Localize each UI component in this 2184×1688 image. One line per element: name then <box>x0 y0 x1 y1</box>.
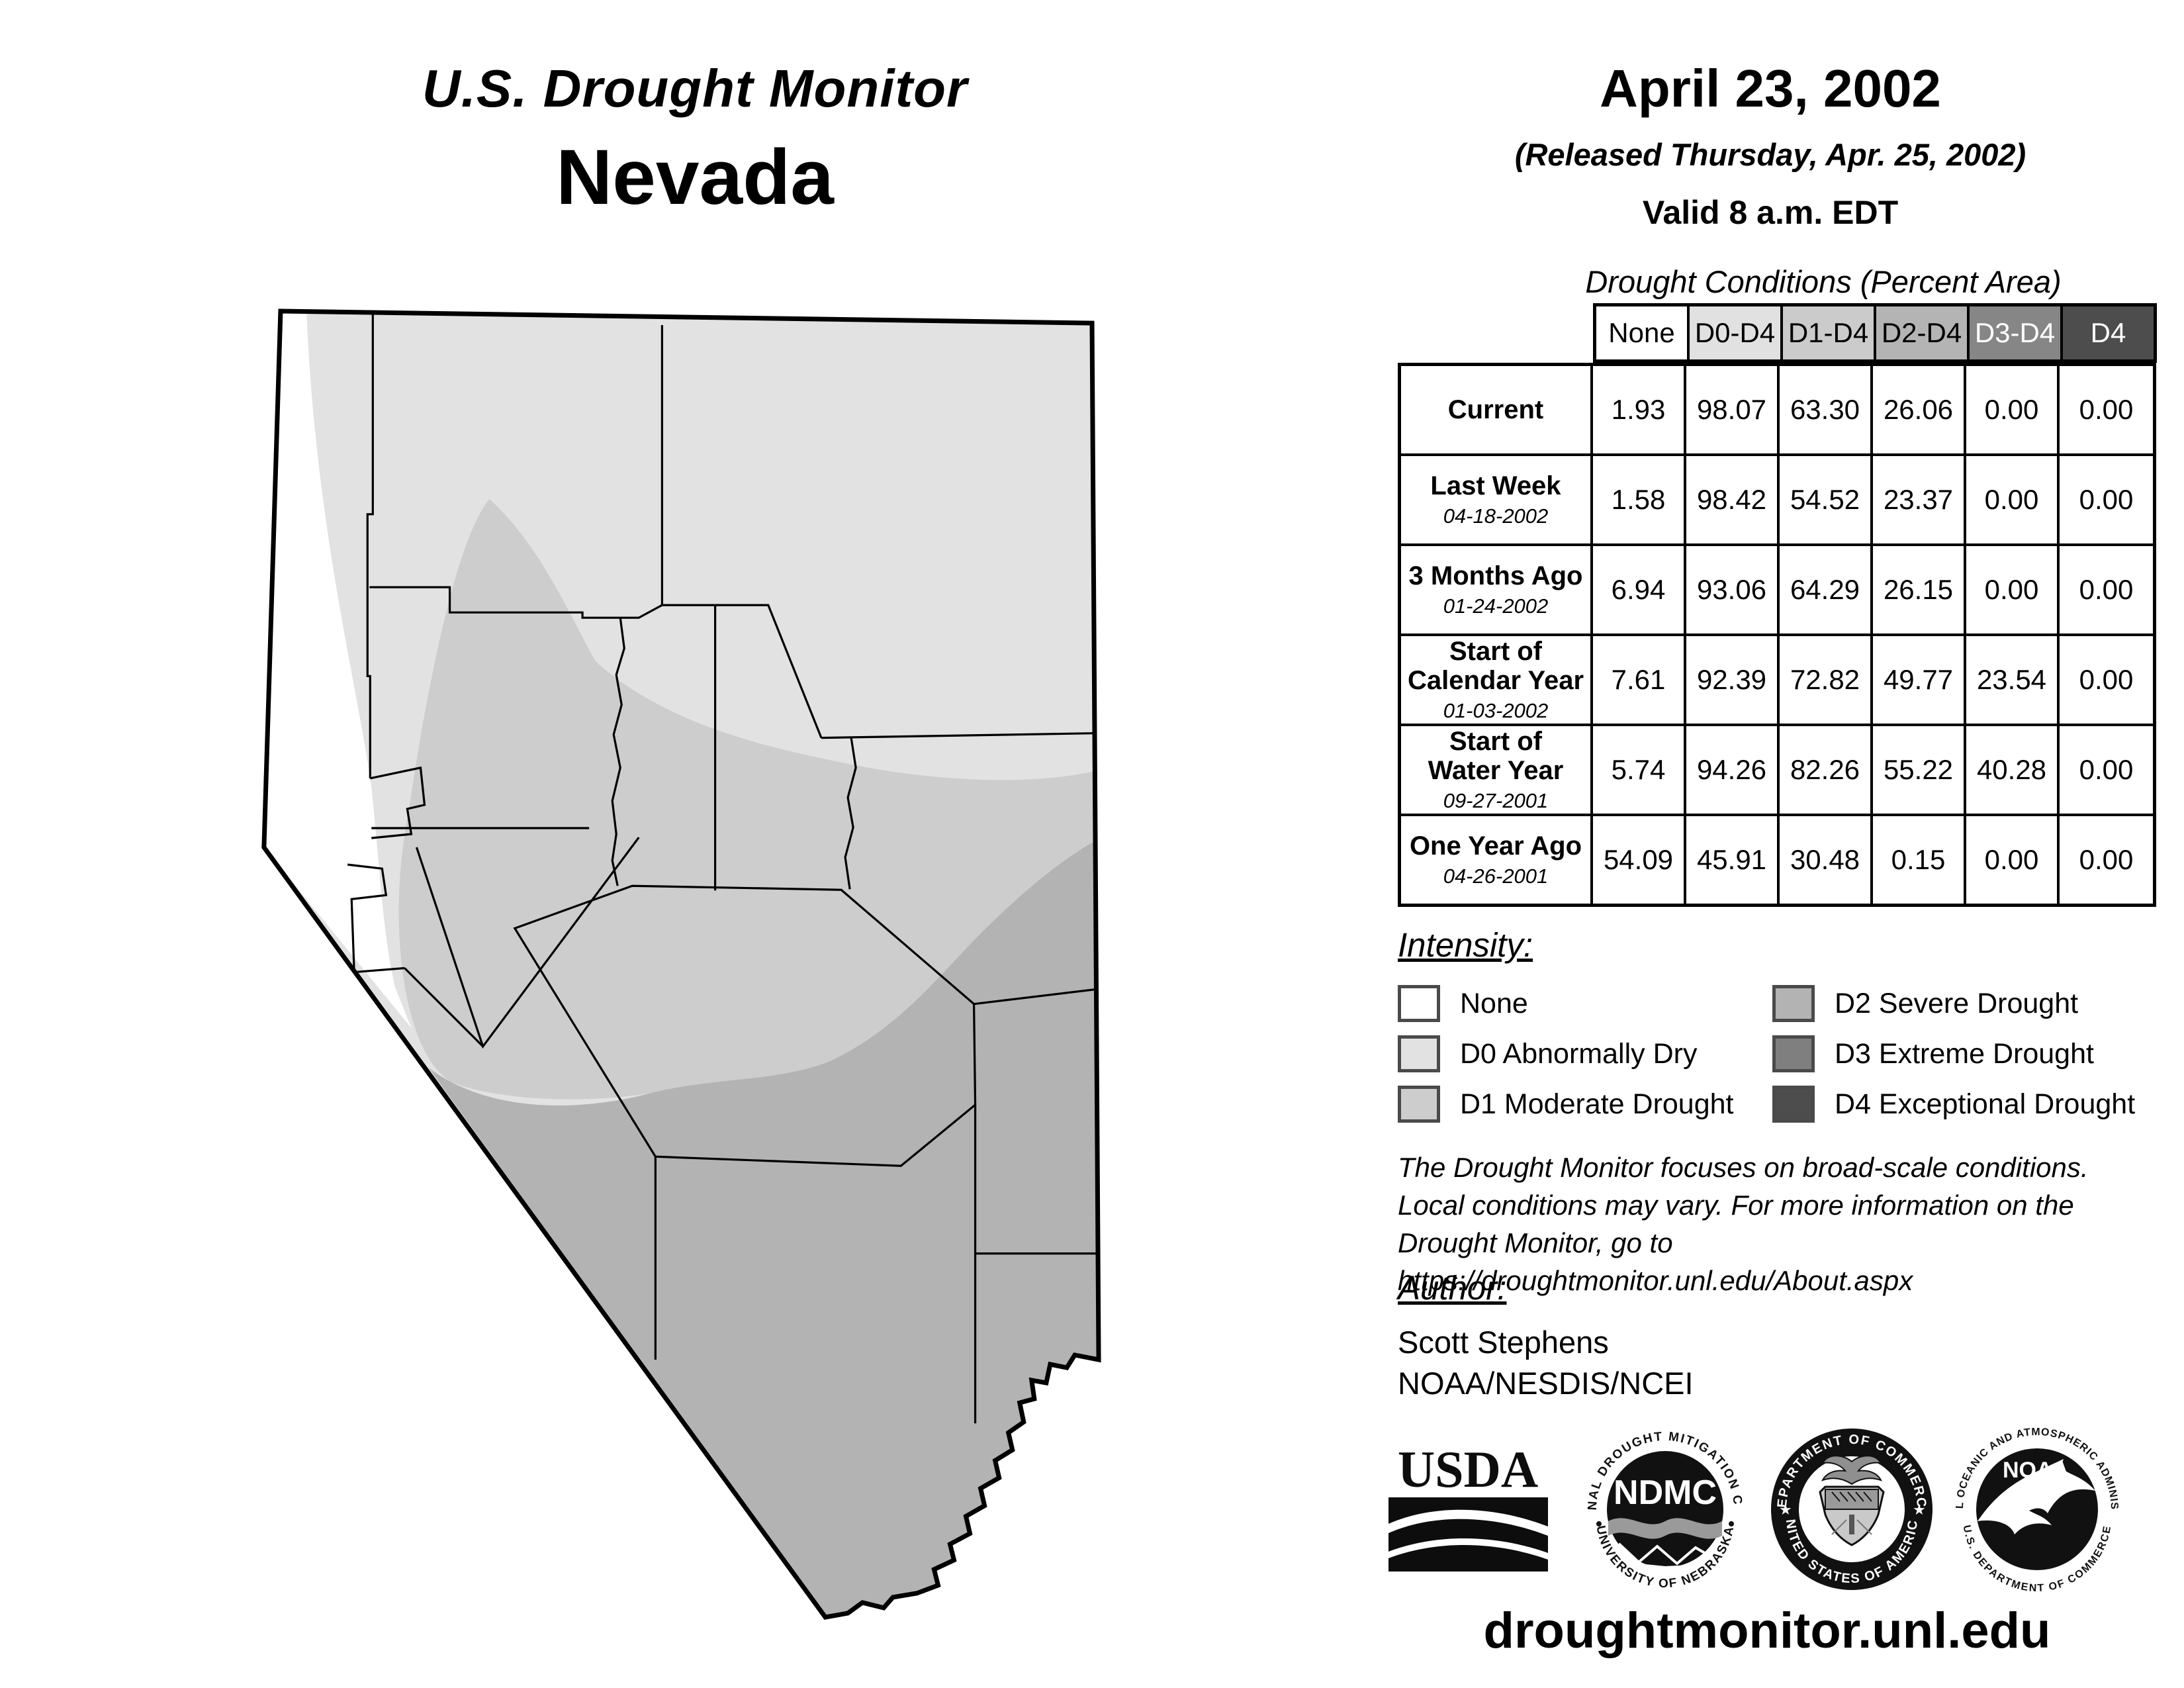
disclaimer-line: Drought Monitor, go to https://droughtmo… <box>1398 1224 2184 1299</box>
table-value-cell: 98.07 <box>1686 366 1780 456</box>
drought-monitor-report: U.S. Drought Monitor Nevada April 23, 20… <box>0 0 2184 1688</box>
table-value-cell: 0.00 <box>1966 546 2060 636</box>
table-row-label: Current <box>1401 366 1593 456</box>
table-value-cell: 0.00 <box>1966 366 2060 456</box>
table-value-cell: 55.22 <box>1873 726 1966 816</box>
table-value-cell: 54.09 <box>1593 816 1686 904</box>
table-row-label: One Year Ago04-26-2001 <box>1401 816 1593 904</box>
table-value-cell: 49.77 <box>1873 636 1966 726</box>
table-row-date: 01-24-2002 <box>1443 594 1549 618</box>
table-value-cell: 7.61 <box>1593 636 1686 726</box>
table-value-cell: 0.00 <box>2060 546 2153 636</box>
legend-label: D2 Severe Drought <box>1835 988 2078 1020</box>
table-row-label: 3 Months Ago01-24-2002 <box>1401 546 1593 636</box>
table-value-cell: 6.94 <box>1593 546 1686 636</box>
legend-label: None <box>1460 988 1528 1020</box>
legend-label: D1 Moderate Drought <box>1460 1088 1734 1121</box>
usda-logo: USDA <box>1387 1446 1549 1585</box>
table-column-header: D4 <box>2063 306 2154 359</box>
table-value-cell: 92.39 <box>1686 636 1780 726</box>
table-value-cell: 54.52 <box>1780 456 1873 546</box>
table-column-header: D3-D4 <box>1970 306 2063 359</box>
table-title: Drought Conditions (Percent Area) <box>1489 263 2158 300</box>
release-date: (Released Thursday, Apr. 25, 2002) <box>1390 136 2151 173</box>
legend-label: D0 Abnormally Dry <box>1460 1038 1697 1070</box>
usda-logo-text: USDA <box>1398 1446 1538 1498</box>
table-value-cell: 82.26 <box>1780 726 1873 816</box>
footer-url: droughtmonitor.unl.edu <box>1436 1602 2098 1660</box>
doc-star-left: ★ <box>1779 1501 1792 1518</box>
ndmc-logo: NATIONAL DROUGHT MITIGATION CENTER UNIVE… <box>1579 1423 1751 1599</box>
legend-item: D4 Exceptional Drought <box>1772 1079 2135 1129</box>
table-row-date: 01-03-2002 <box>1443 699 1549 723</box>
table-value-cell: 63.30 <box>1780 366 1873 456</box>
legend-item: D3 Extreme Drought <box>1772 1029 2135 1079</box>
table-value-cell: 0.00 <box>1966 816 2060 904</box>
table-value-cell: 23.37 <box>1873 456 1966 546</box>
table-row-label: Start of Calendar Year01-03-2002 <box>1401 636 1593 726</box>
author-org: NOAA/NESDIS/NCEI <box>1398 1365 1694 1401</box>
legend-item: None <box>1398 978 1734 1029</box>
table-value-cell: 72.82 <box>1780 636 1873 726</box>
table-column-header: D1-D4 <box>1783 306 1876 359</box>
table-row-date: 09-27-2001 <box>1443 789 1549 813</box>
agency-logos: USDA NATIONAL DROUGHT MITIGATION CENTER … <box>1387 1423 2155 1602</box>
legend-swatch <box>1398 1035 1440 1072</box>
legend-swatch <box>1772 985 1815 1022</box>
legend-label: D4 Exceptional Drought <box>1835 1088 2135 1121</box>
table-value-cell: 94.26 <box>1686 726 1780 816</box>
legend-swatch <box>1398 1086 1440 1123</box>
legend-swatch <box>1398 985 1440 1022</box>
state-title: Nevada <box>238 132 1152 222</box>
nevada-map-svg <box>250 303 1130 1620</box>
legend-item: D0 Abnormally Dry <box>1398 1029 1734 1079</box>
legend-item: D1 Moderate Drought <box>1398 1079 1734 1129</box>
disclaimer-text: The Drought Monitor focuses on broad-sca… <box>1398 1149 2184 1299</box>
table-header-row: NoneD0-D4D1-D4D2-D4D3-D4D4 <box>1593 303 2157 363</box>
table-column-header: D0-D4 <box>1690 306 1783 359</box>
commerce-seal: DEPARTMENT OF COMMERCE UNITED STATES OF … <box>1766 1423 1938 1599</box>
table-value-cell: 23.54 <box>1966 636 2060 726</box>
table-column-header: D2-D4 <box>1876 306 1970 359</box>
table-value-cell: 0.00 <box>2060 726 2153 816</box>
table-value-cell: 0.00 <box>2060 636 2153 726</box>
table-value-cell: 40.28 <box>1966 726 2060 816</box>
ndmc-center-text: NDMC <box>1614 1474 1717 1512</box>
table-value-cell: 0.00 <box>1966 456 2060 546</box>
table-row-date: 04-18-2002 <box>1443 504 1549 528</box>
report-date: April 23, 2002 <box>1390 58 2151 119</box>
table-value-cell: 0.00 <box>2060 366 2153 456</box>
table-value-cell: 26.15 <box>1873 546 1966 636</box>
table-body: Current1.9398.0763.3026.060.000.00Last W… <box>1398 363 2156 907</box>
doc-star-right: ★ <box>1913 1501 1926 1518</box>
nevada-drought-map <box>250 303 1130 1620</box>
legend-column-left: NoneD0 Abnormally DryD1 Moderate Drought <box>1398 978 1734 1129</box>
legend-swatch <box>1772 1035 1815 1072</box>
table-value-cell: 93.06 <box>1686 546 1780 636</box>
table-row-label: Last Week04-18-2002 <box>1401 456 1593 546</box>
table-value-cell: 0.00 <box>2060 456 2153 546</box>
drought-conditions-table: NoneD0-D4D1-D4D2-D4D3-D4D4 Current1.9398… <box>1398 303 2157 907</box>
table-value-cell: 0.00 <box>2060 816 2153 904</box>
disclaimer-line: Local conditions may vary. For more info… <box>1398 1186 2184 1224</box>
noaa-center-text: NOAA <box>2003 1458 2069 1483</box>
table-column-header: None <box>1596 306 1690 359</box>
legend-label: D3 Extreme Drought <box>1835 1038 2094 1070</box>
author-name: Scott Stephens <box>1398 1324 1609 1360</box>
legend-item: D2 Severe Drought <box>1772 978 2135 1029</box>
legend-swatch <box>1772 1086 1815 1123</box>
table-value-cell: 26.06 <box>1873 366 1966 456</box>
table-value-cell: 1.93 <box>1593 366 1686 456</box>
table-value-cell: 98.42 <box>1686 456 1780 546</box>
author-title: Author: <box>1398 1268 1506 1307</box>
table-value-cell: 30.48 <box>1780 816 1873 904</box>
legend-title: Intensity: <box>1398 925 1533 964</box>
table-value-cell: 5.74 <box>1593 726 1686 816</box>
table-value-cell: 45.91 <box>1686 816 1780 904</box>
valid-time: Valid 8 a.m. EDT <box>1390 193 2151 232</box>
table-row-label: Start of Water Year09-27-2001 <box>1401 726 1593 816</box>
noaa-logo: NATIONAL OCEANIC AND ATMOSPHERIC ADMINIS… <box>1951 1423 2123 1599</box>
table-row-date: 04-26-2001 <box>1443 865 1549 888</box>
legend-column-right: D2 Severe DroughtD3 Extreme DroughtD4 Ex… <box>1772 978 2135 1129</box>
table-value-cell: 0.15 <box>1873 816 1966 904</box>
disclaimer-line: The Drought Monitor focuses on broad-sca… <box>1398 1149 2184 1186</box>
page-title: U.S. Drought Monitor <box>238 58 1152 119</box>
table-value-cell: 64.29 <box>1780 546 1873 636</box>
table-value-cell: 1.58 <box>1593 456 1686 546</box>
